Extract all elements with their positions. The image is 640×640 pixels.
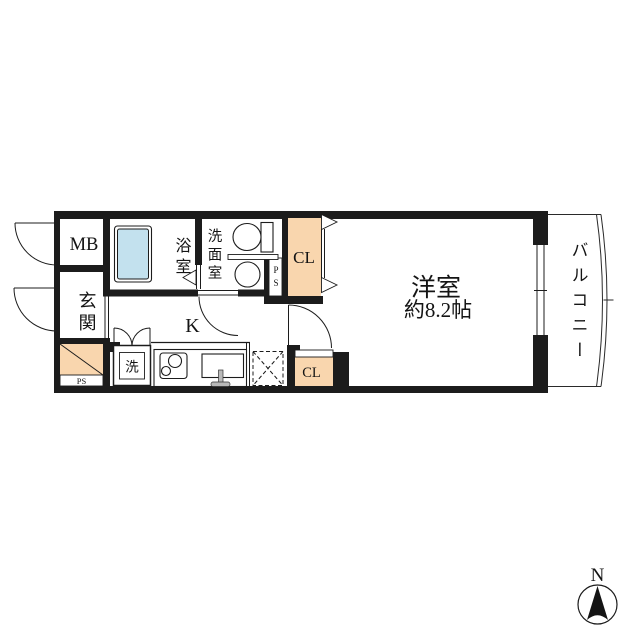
wash-basin — [235, 262, 260, 287]
counter — [154, 350, 247, 387]
wall-left — [54, 211, 60, 393]
room-label-closet-lower: CL — [302, 365, 321, 381]
wall-right-lower — [533, 335, 548, 393]
closet-upper-front — [322, 229, 325, 278]
wall-right-upper — [533, 211, 548, 245]
room-door-swing — [289, 305, 332, 348]
faucet-base — [211, 382, 230, 387]
vanity-counter — [228, 255, 278, 260]
wall-closet-lower-right — [333, 352, 349, 393]
room-label-western-room-size: 約8.2帖 — [404, 298, 472, 322]
wall-closet-left — [282, 211, 288, 304]
washroom-door-threshold — [198, 291, 238, 296]
folding-door-mark-bottom — [322, 278, 338, 293]
room-label-balcony: バルコニー — [569, 241, 588, 366]
floor-plan-page: MB 玄関 浴室 洗面室 CL PS K 洗 CL PS 洋室 約8.2帖 バル… — [0, 0, 640, 640]
wall-closet-lower-left — [287, 352, 295, 386]
toilet-tank — [261, 223, 273, 253]
bathtub — [118, 229, 149, 279]
wall-entry-column — [103, 211, 110, 296]
balcony-inner-rail — [597, 215, 603, 387]
wall-entry-storage-top — [54, 338, 110, 344]
wall-bath-bottom — [103, 290, 198, 297]
entrance-step-edge — [105, 296, 109, 340]
wall-bath-right — [195, 211, 202, 265]
room-label-bathroom: 浴室 — [173, 237, 192, 279]
wall-bottom — [54, 386, 548, 393]
room-label-closet-upper: CL — [293, 248, 315, 267]
counter-right-edge — [247, 343, 250, 387]
washer-door-right — [132, 328, 150, 346]
label-pipe-space-lower: PS — [77, 376, 87, 386]
wall-ps-left — [264, 258, 269, 296]
toilet-bowl — [233, 224, 261, 251]
room-label-kitchen: K — [185, 315, 200, 337]
label-pipe-space-upper: PS — [271, 265, 281, 291]
room-label-washroom: 洗面室 — [206, 228, 222, 284]
wall-entry-storage-right — [103, 338, 110, 386]
stove-burner-small — [162, 367, 171, 376]
refrigerator-cross — [253, 352, 283, 386]
entrance-door-swing — [14, 288, 57, 331]
wall-top — [54, 211, 548, 219]
wall-closet-bottom — [264, 296, 323, 304]
washroom-door-swing — [199, 297, 238, 336]
compass: N — [578, 565, 617, 624]
room-label-meter-box: MB — [70, 235, 99, 255]
wall-mb-bottom — [60, 265, 103, 272]
closet-lower-door — [295, 350, 333, 357]
compass-north-needle-icon — [587, 586, 608, 620]
faucet-stem — [219, 370, 224, 383]
compass-north-label: N — [591, 565, 605, 586]
label-washer: 洗 — [125, 360, 139, 375]
floor-plan-canvas: MB 玄関 浴室 洗面室 CL PS K 洗 CL PS 洋室 約8.2帖 バル… — [0, 0, 640, 640]
mb-door-swing — [15, 223, 57, 265]
stove-burner-large — [169, 355, 182, 368]
bath-door-lines — [197, 265, 201, 289]
room-label-entrance: 玄関 — [77, 291, 97, 335]
